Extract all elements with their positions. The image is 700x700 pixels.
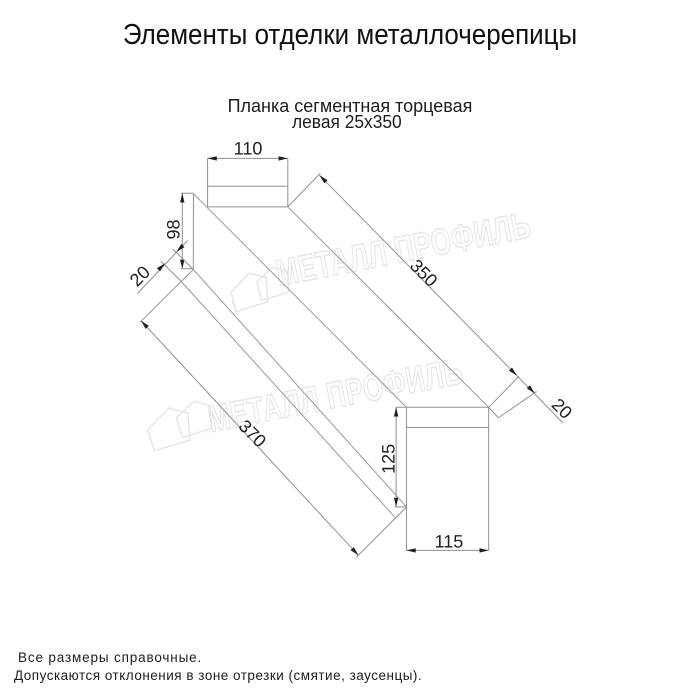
svg-text:20: 20 <box>548 394 576 422</box>
svg-text:115: 115 <box>435 532 464 552</box>
svg-text:125: 125 <box>379 444 399 474</box>
svg-text:МЕТАЛЛ ПРОФИЛЬ: МЕТАЛЛ ПРОФИЛЬ <box>273 204 535 294</box>
svg-text:98: 98 <box>164 219 184 239</box>
svg-text:110: 110 <box>234 139 263 159</box>
svg-text:20: 20 <box>126 262 154 290</box>
